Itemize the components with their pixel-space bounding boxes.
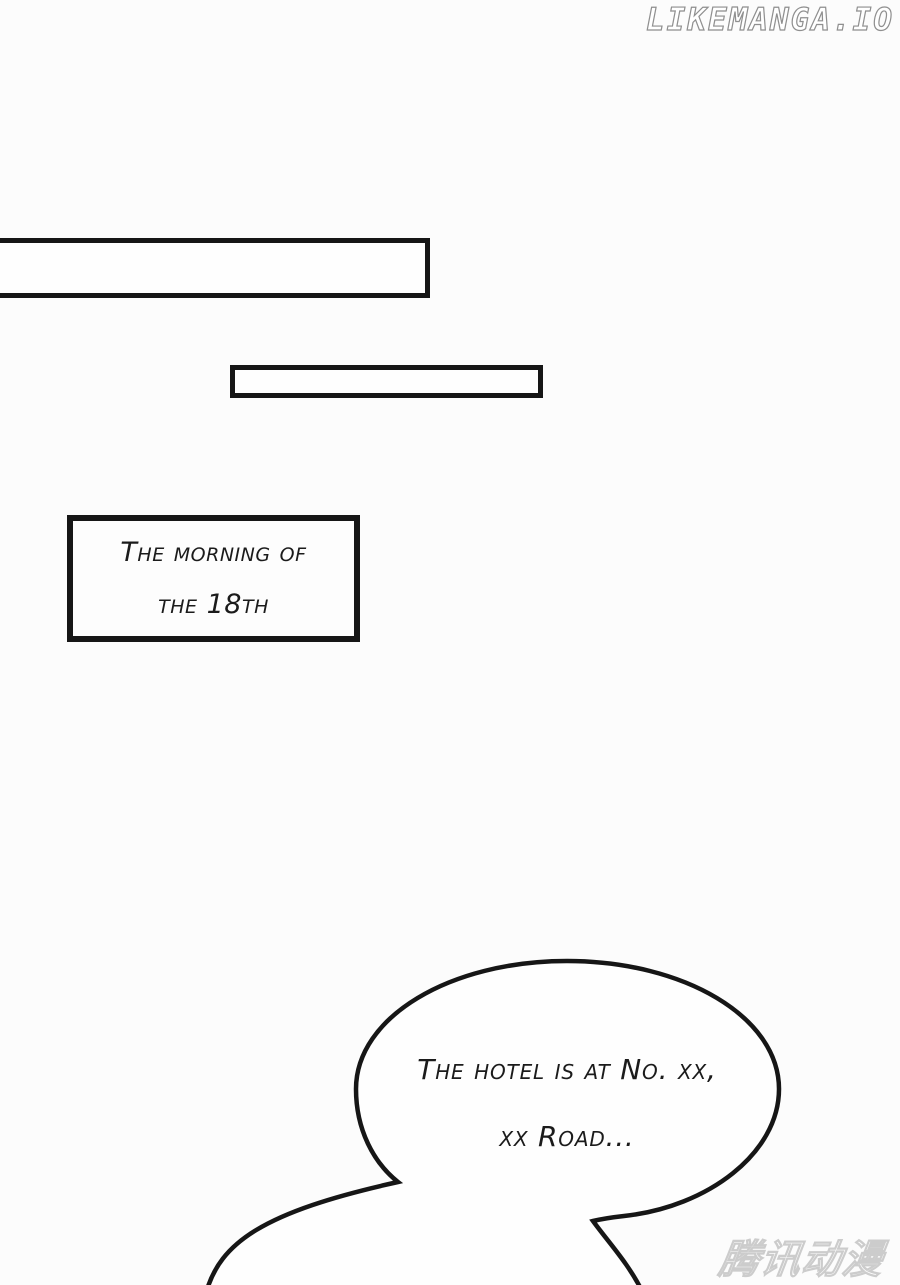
- speech-bubble-text: The hotel is at No. xx, xx Road...: [337, 1036, 797, 1170]
- speech-line-2: xx Road...: [337, 1103, 797, 1170]
- manga-page: LIKEMANGA.IO The morning of the 18th The…: [0, 0, 900, 1285]
- speech-line-1: The hotel is at No. xx,: [337, 1036, 797, 1103]
- publisher-watermark-text: 腾讯动漫: [716, 1227, 888, 1285]
